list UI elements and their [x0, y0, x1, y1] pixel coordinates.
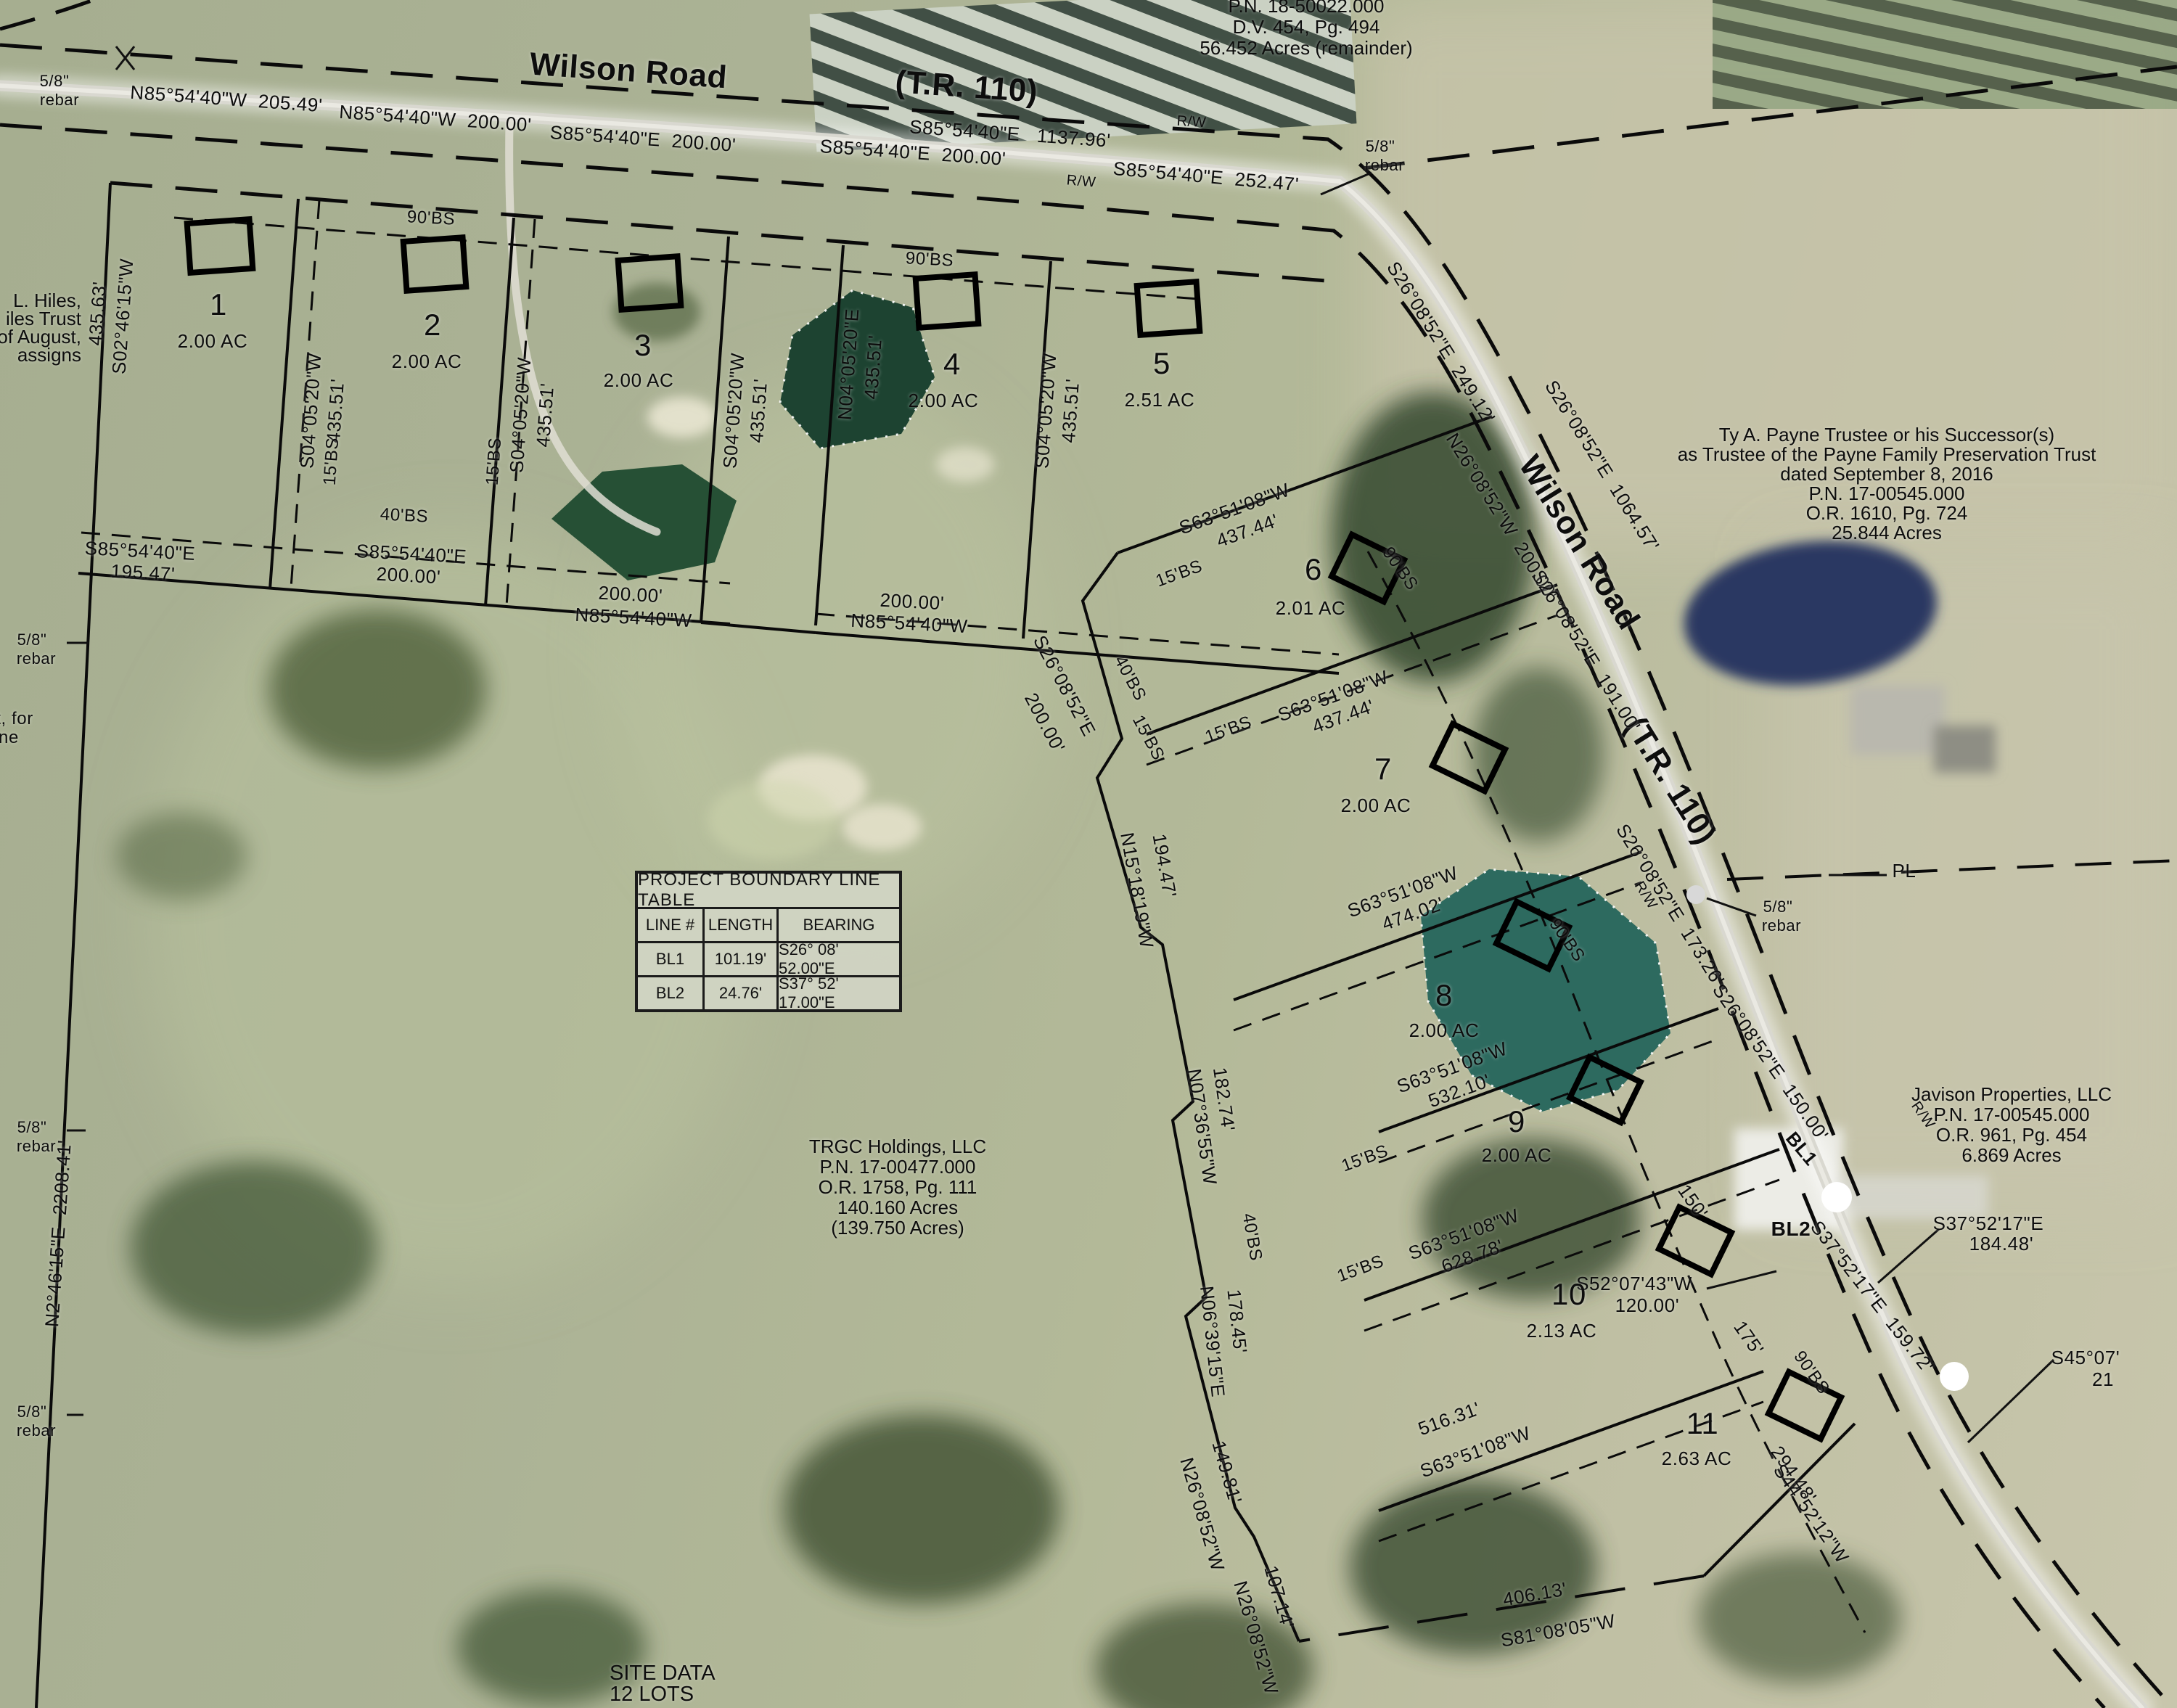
lot-acreage-label: 2.00 AC — [1341, 796, 1411, 815]
parcel-remainder-block-line: 56.452 Acres (remainder) — [1200, 38, 1412, 59]
distance-label: 435.51' — [533, 382, 557, 448]
label-layer: 5/8"rebarN85°54'40"W 205.49'N85°54'40"W … — [0, 0, 2177, 1708]
table-cell: 101.19' — [705, 943, 779, 977]
distance-label: 175' — [1731, 1318, 1767, 1358]
road-name-label: (T.R. 110) — [894, 66, 1038, 108]
rebar-label: 5/8" — [17, 1120, 47, 1136]
javison-owner-block: Javison Properties, LLCP.N. 17-00545.000… — [1911, 1084, 2112, 1165]
rebar-label: rebar — [40, 92, 79, 108]
table-row: BL1101.19'S26° 08' 52.00"E — [638, 943, 899, 977]
setback-label: 90'BS — [1546, 916, 1588, 965]
lot-number-label: 8 — [1435, 980, 1453, 1011]
trgc-owner-block-line: (139.750 Acres) — [809, 1218, 986, 1238]
boundary-line-label: BL2 — [1771, 1219, 1811, 1239]
javison-owner-block-line: P.N. 17-00545.000 — [1911, 1104, 2112, 1125]
bearing-label: S44°52'12"W — [1771, 1461, 1853, 1567]
bearing-label: S04°05'20"W — [720, 352, 747, 469]
distance-label: 149.81' — [1209, 1439, 1245, 1506]
bearing-label: S04°05'20"W — [507, 356, 533, 473]
rebar-label: rebar — [17, 1138, 56, 1154]
distance-label: 200.00' — [598, 583, 663, 606]
lot-acreage-label: 2.00 AC — [909, 391, 979, 410]
site-data-block-line: SITE DATA — [610, 1663, 716, 1684]
trgc-owner-block-line: O.R. 1758, Pg. 111 — [809, 1177, 986, 1197]
lot-acreage-label: 2.00 AC — [1482, 1146, 1552, 1165]
bearing-label: S85°54'40"E 252.47' — [1112, 159, 1300, 194]
distance-label: 435.51' — [747, 378, 770, 443]
distance-label: 195.47' — [110, 562, 176, 584]
lot-acreage-label: 2.00 AC — [1409, 1021, 1480, 1040]
trgc-owner-block-line: TRGC Holdings, LLC — [809, 1136, 986, 1157]
distance-label: 150' — [1675, 1181, 1711, 1222]
payne-owner-block-line: dated September 8, 2016 — [1678, 464, 2096, 484]
rebar-label: 5/8" — [17, 632, 47, 648]
lot-number-label: 11 — [1686, 1408, 1719, 1439]
rebar-label: 5/8" — [17, 1404, 47, 1420]
lot-number-label: 9 — [1508, 1106, 1525, 1137]
table-cell: S26° 08' 52.00"E — [779, 943, 899, 977]
distance-label: 200.00' — [376, 564, 441, 587]
distance-label: 194.47' — [1149, 832, 1179, 899]
rebar-label: rebar — [17, 651, 56, 667]
lot-acreage-label: 2.00 AC — [392, 352, 462, 371]
rebar-label: rebar — [17, 1423, 56, 1439]
setback-label: 15'BS — [484, 437, 505, 486]
lot-number-label: 3 — [634, 330, 652, 361]
table-cell: BL2 — [638, 977, 705, 1009]
lot-acreage-label: 2.00 AC — [604, 371, 674, 390]
javison-owner-block-line: O.R. 961, Pg. 454 — [1911, 1125, 2112, 1145]
setback-label: 15'BS — [1203, 713, 1255, 746]
bearing-label: N85°54'40"W 205.49' — [130, 83, 324, 115]
bearing-label: N85°54'40"W — [575, 605, 692, 630]
setback-label: 15'BS — [1340, 1142, 1391, 1175]
parcel-remainder-block: P.N. 18-50022.000D.V. 454, Pg. 49456.452… — [1200, 0, 1412, 59]
distance-label: 406.13' — [1501, 1579, 1568, 1609]
bearing-label: S85°54'40"E 200.00' — [549, 123, 737, 155]
javison-owner-block-line: 6.869 Acres — [1911, 1145, 2112, 1165]
project-boundary-line-table: PROJECT BOUNDARY LINE TABLE LINE #LENGTH… — [635, 871, 902, 1012]
rebar-label: 5/8" — [1366, 139, 1395, 155]
site-data-block-line: 12 LOTS — [610, 1684, 716, 1705]
distance-label: 178.45' — [1224, 1289, 1250, 1355]
lot-acreage-label: 2.13 AC — [1527, 1321, 1597, 1340]
setback-label: 40'BS — [1239, 1212, 1264, 1262]
distance-label: 200.00' — [880, 591, 945, 613]
distance-label: 120.00' — [1615, 1296, 1680, 1315]
table-cell: BL1 — [638, 943, 705, 977]
road-name-label: Wilson Road — [1513, 451, 1645, 636]
lot-number-label: 7 — [1374, 754, 1392, 784]
setback-label: 40'BS — [1111, 653, 1149, 704]
payne-owner-block-line: 25.844 Acres — [1678, 523, 2096, 543]
rw-label: R/W — [1066, 173, 1096, 189]
site-data-block: SITE DATA12 LOTS — [610, 1663, 716, 1705]
payne-owner-block-line: P.N. 17-00545.000 — [1678, 484, 2096, 504]
table-row: BL224.76'S37° 52' 17.00"E — [638, 977, 899, 1009]
rebar-label: rebar — [1762, 918, 1801, 934]
bearing-label: N85°54'40"W — [850, 611, 968, 636]
pl-label: PL — [1892, 861, 1916, 880]
bearing-label: S85°54'40"E — [84, 538, 196, 563]
table-header-row: LINE #LENGTHBEARING — [638, 909, 899, 943]
table-title: PROJECT BOUNDARY LINE TABLE — [638, 874, 899, 909]
payne-owner-block-line: as Trustee of the Payne Family Preservat… — [1678, 445, 2096, 464]
parcel-remainder-block-line: D.V. 454, Pg. 494 — [1200, 17, 1412, 38]
rebar-label: 5/8" — [40, 73, 70, 89]
payne-owner-block-line: Ty A. Payne Trustee or his Successor(s) — [1678, 425, 2096, 445]
bearing-label: S37°52'17"E 159.72' — [1808, 1218, 1938, 1376]
distance-label: 435.51' — [324, 378, 347, 443]
bearing-label: N06°39'15"E — [1197, 1285, 1228, 1398]
owner-label: t, for — [0, 710, 33, 728]
hiles-owner-block-line: assigns — [0, 346, 81, 364]
trgc-owner-block: TRGC Holdings, LLCP.N. 17-00477.000O.R. … — [809, 1136, 986, 1238]
setback-label: 90'BS — [1379, 544, 1421, 594]
lot-number-label: 1 — [210, 290, 227, 320]
bearing-label: S85°54'40"E — [356, 541, 467, 566]
bearing-label: S81°08'05"W — [1499, 1611, 1617, 1649]
table-header-cell: BEARING — [779, 909, 899, 943]
distance-label: 435.63' — [86, 281, 109, 346]
setback-label: 15'BS — [1154, 557, 1205, 590]
distance-label: 435.51' — [1059, 378, 1082, 443]
table-cell: S37° 52' 17.00"E — [779, 977, 899, 1009]
table-body: BL1101.19'S26° 08' 52.00"EBL224.76'S37° … — [638, 943, 899, 1009]
plat-map: 5/8"rebarN85°54'40"W 205.49'N85°54'40"W … — [0, 0, 2177, 1708]
lot-number-label: 2 — [424, 310, 441, 340]
bearing-label: S26°08'52"E 173.26' — [1613, 821, 1728, 989]
javison-owner-block-line: Javison Properties, LLC — [1911, 1084, 2112, 1104]
setback-label: 15'BS — [1129, 713, 1167, 763]
bearing-label: S26°08'52"E 150.00' — [1710, 980, 1832, 1144]
road-name-label: Wilson Road — [528, 49, 728, 94]
distance-label: 435.51' — [861, 334, 885, 400]
setback-label: 40'BS — [380, 506, 428, 525]
distance-label: 182.74' — [1210, 1066, 1238, 1132]
distance-label: 184.48' — [1969, 1234, 2034, 1253]
bearing-label: S45°07' — [2051, 1348, 2120, 1367]
payne-owner-block-line: O.R. 1610, Pg. 724 — [1678, 504, 2096, 523]
rw-label: R/W — [1176, 114, 1207, 131]
bearing-label: S04°05'20"W — [297, 352, 324, 469]
trgc-owner-block-line: P.N. 17-00477.000 — [809, 1157, 986, 1177]
hiles-owner-block: L. Hiles,iles Trustof August,assigns — [0, 292, 81, 364]
lot-number-label: 5 — [1153, 348, 1171, 379]
rebar-label: 5/8" — [1763, 899, 1793, 915]
distance-label: 21 — [2092, 1370, 2114, 1389]
rebar-label: rebar — [1365, 157, 1404, 173]
owner-label: ne — [0, 729, 19, 747]
table-header-cell: LENGTH — [705, 909, 779, 943]
bearing-label: S02°46'15"W — [109, 258, 136, 374]
lot-acreage-label: 2.63 AC — [1662, 1449, 1732, 1468]
parcel-remainder-block-line: P.N. 18-50022.000 — [1200, 0, 1412, 17]
bearing-label: S26°08'52"E 249.12' — [1384, 258, 1499, 427]
bearing-label: S04°05'20"W — [1032, 352, 1059, 469]
lot-number-label: 4 — [943, 349, 961, 379]
setback-label: 15'BS — [321, 437, 343, 486]
payne-owner-block: Ty A. Payne Trustee or his Successor(s)a… — [1678, 425, 2096, 543]
lot-number-label: 10 — [1551, 1279, 1586, 1310]
bearing-label: N04°05'20"E — [835, 308, 862, 421]
distance-label: 107.14' — [1261, 1564, 1297, 1630]
distance-label: 516.31' — [1416, 1399, 1483, 1439]
table-header-cell: LINE # — [638, 909, 705, 943]
setback-label: 90'BS — [406, 208, 455, 228]
lot-number-label: 6 — [1305, 554, 1322, 585]
setback-label: 90'BS — [905, 250, 954, 269]
bearing-label: S52°07'43"W — [1576, 1274, 1692, 1293]
bearing-label: S37°52'17"E — [1933, 1214, 2044, 1233]
bearing-label: N2°46'15"E 2208.41' — [42, 1139, 74, 1328]
setback-label: 90'BS — [1790, 1348, 1832, 1397]
lot-acreage-label: 2.51 AC — [1125, 390, 1195, 409]
bearing-label: N85°54'40"W 200.00' — [339, 102, 533, 134]
lot-acreage-label: 2.00 AC — [178, 332, 248, 350]
lot-acreage-label: 2.01 AC — [1276, 599, 1346, 617]
setback-label: 15'BS — [1335, 1252, 1387, 1285]
trgc-owner-block-line: 140.160 Acres — [809, 1197, 986, 1218]
table-cell: 24.76' — [705, 977, 779, 1009]
